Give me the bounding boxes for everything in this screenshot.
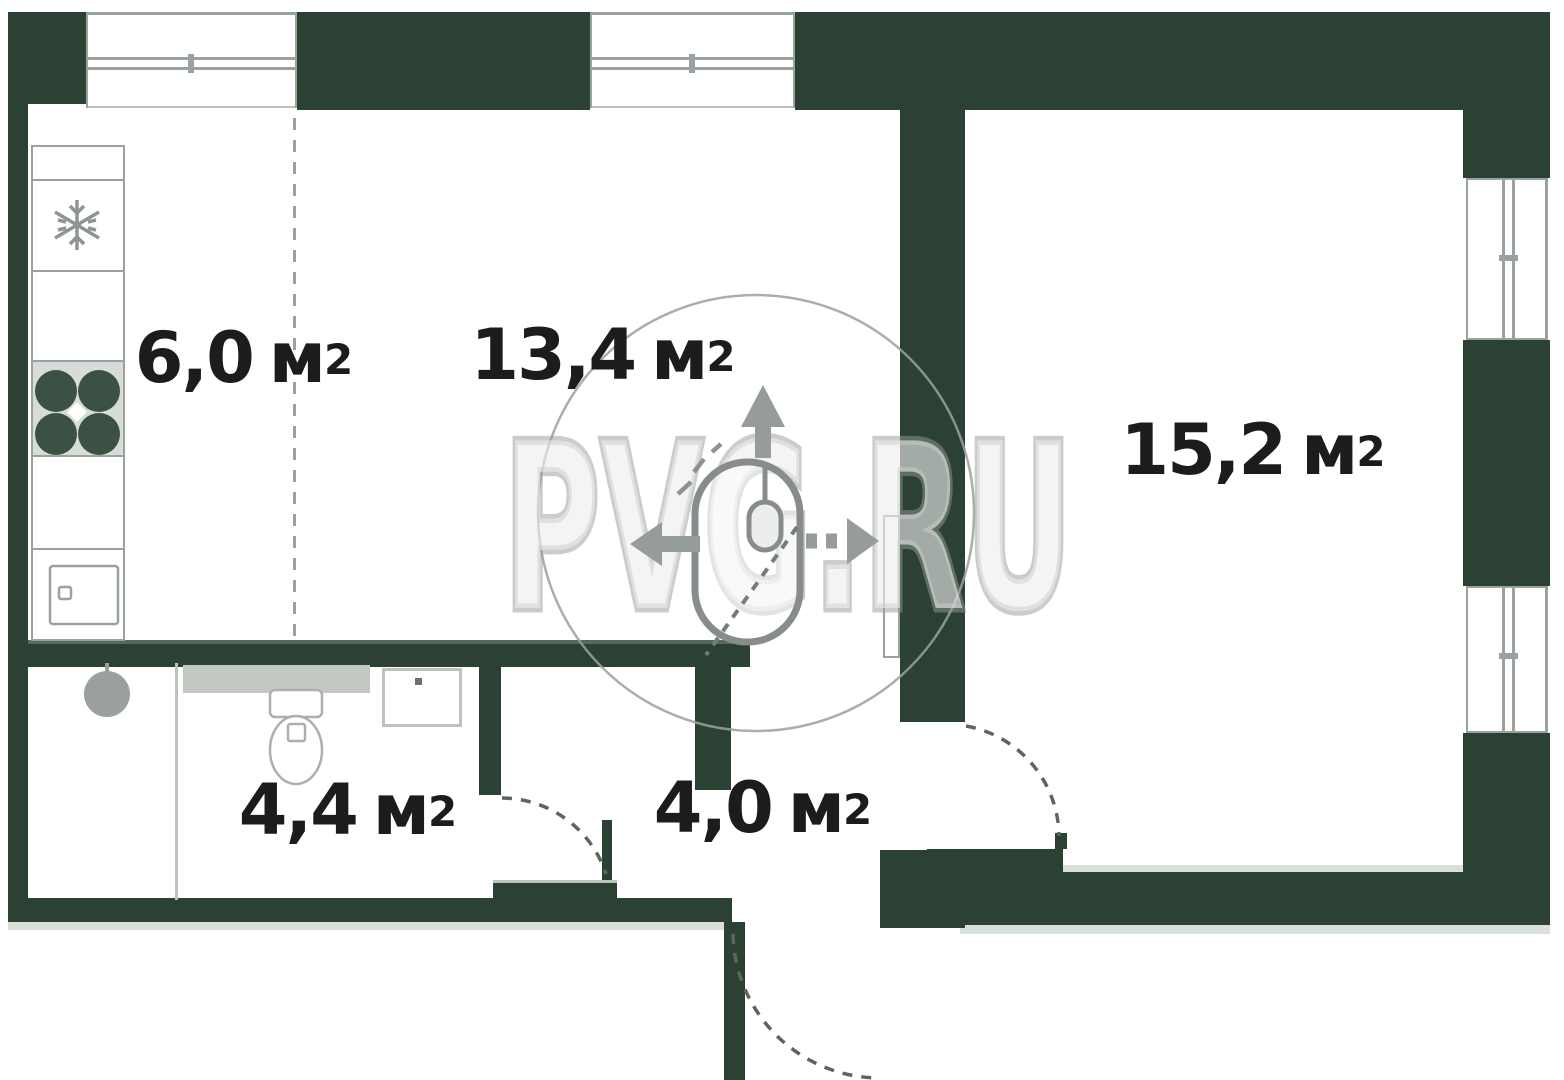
room-label-kitchen: 6,0м2 xyxy=(135,323,353,393)
wall-shadow xyxy=(8,922,732,930)
living-door-leaf xyxy=(883,515,900,658)
wall-left xyxy=(8,104,28,922)
wall-kitchen-bath xyxy=(28,640,750,667)
wall-room-divider xyxy=(900,110,965,722)
floor-plan: 6,0м2 13,4м2 15,2м2 4,4м2 4,0м2 xyxy=(0,0,1564,1080)
wall-right-mid xyxy=(1463,340,1550,586)
fridge-icon xyxy=(55,200,99,250)
scroll-left-arrow-icon xyxy=(630,522,700,566)
wall-top-a xyxy=(297,12,590,110)
bath-door-leaf xyxy=(602,820,612,880)
bedroom-door-arc xyxy=(966,726,1059,836)
wall-bath-door-ledge xyxy=(493,880,617,901)
wall-bottom-left xyxy=(8,898,732,922)
room-label-bathroom: 4,4м2 xyxy=(239,775,457,845)
kitchen-sink-icon xyxy=(50,566,118,624)
wash-basin-dot xyxy=(415,678,422,685)
wall-shadow xyxy=(1063,865,1466,872)
wall-door-stop-bedroom xyxy=(1055,833,1067,849)
room-label-living: 13,4м2 xyxy=(470,320,735,390)
wall-outside-jamb xyxy=(724,922,745,1080)
scroll-right-arrow-icon xyxy=(806,518,879,564)
room-label-bedroom: 15,2м2 xyxy=(1120,415,1385,485)
wall-bottom-lip xyxy=(927,849,1063,872)
wall-top-right-corner xyxy=(1463,12,1550,178)
watermark-dash-line xyxy=(706,527,797,655)
wall-bottom-right xyxy=(960,872,1550,925)
bath-vanity xyxy=(183,665,370,693)
mouse-icon xyxy=(695,462,800,642)
washing-machine-icon xyxy=(84,663,130,717)
wall-top-b xyxy=(795,12,1463,110)
scroll-up-arrow-icon xyxy=(741,385,785,458)
wall-shadow xyxy=(960,925,1550,934)
wall-top-left-corner xyxy=(8,12,86,104)
wall-bath-hall-stub xyxy=(479,663,501,795)
click-ticks-icon xyxy=(678,444,721,494)
stove-base xyxy=(33,362,123,456)
bathroom-door-arc xyxy=(502,798,606,874)
room-label-hallway: 4,0м2 xyxy=(654,773,872,843)
watermark-text: PVG.RU xyxy=(503,396,1073,663)
wash-basin xyxy=(382,668,462,727)
bath-zone-line xyxy=(175,663,178,900)
entrance-door-arc xyxy=(733,934,879,1078)
